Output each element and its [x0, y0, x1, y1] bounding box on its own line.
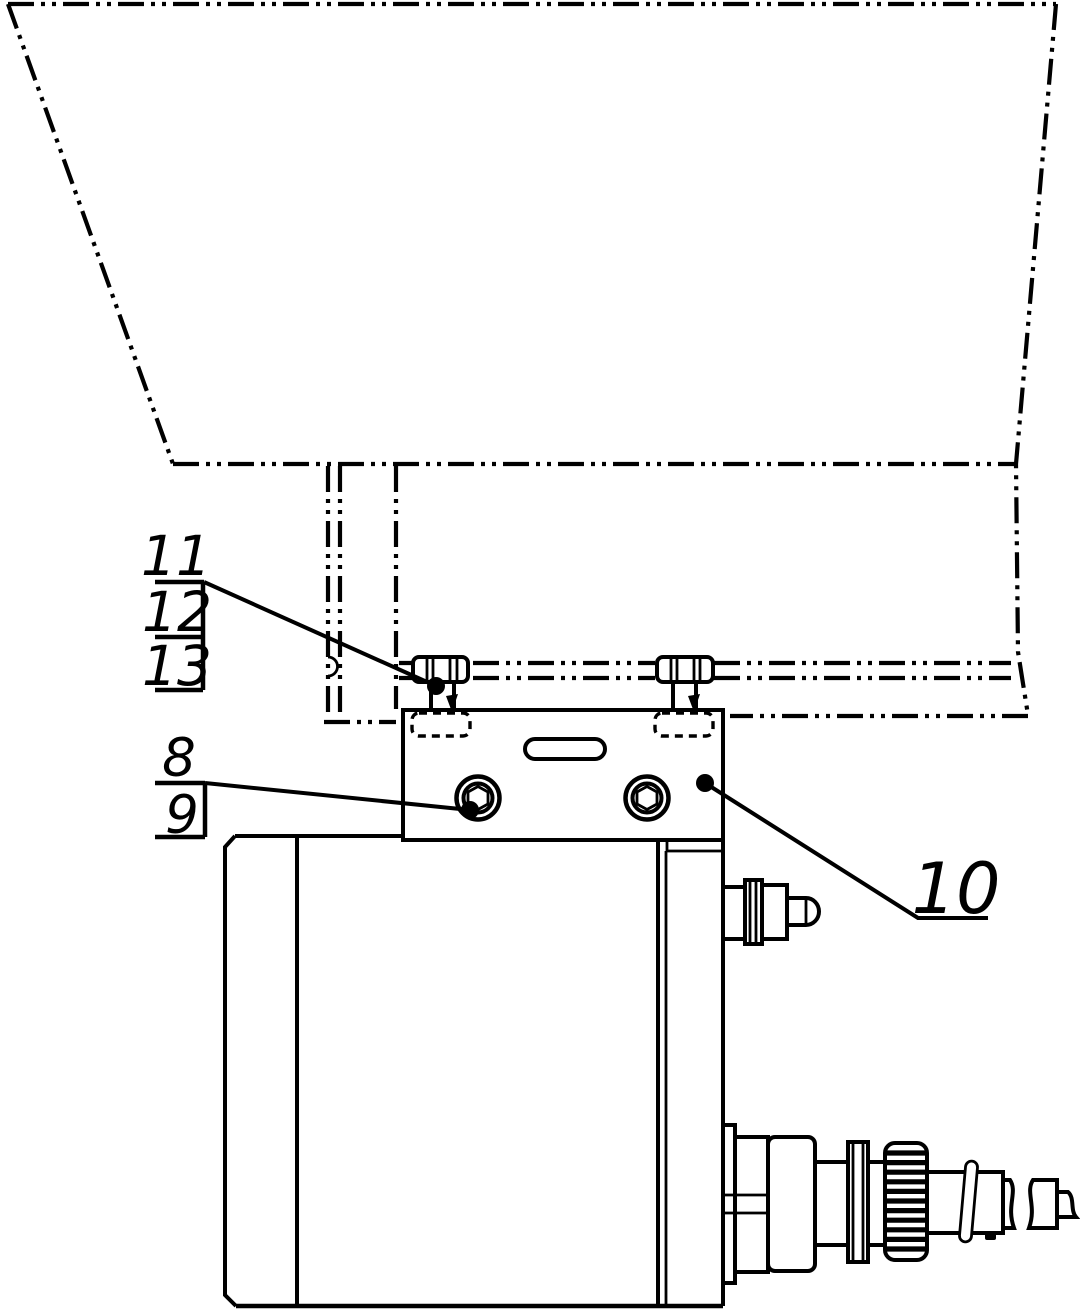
callout-label-8: 8 — [162, 728, 196, 789]
motor-body — [225, 836, 723, 1306]
callout-label-10: 10 — [911, 848, 1000, 930]
callout-label-11: 11 — [141, 524, 211, 588]
connector-body-block — [735, 1137, 768, 1272]
cable-end — [1057, 1192, 1076, 1217]
bracket-slot — [525, 739, 605, 759]
upper-connector — [723, 880, 819, 944]
knurled-coupling-nut — [885, 1143, 927, 1260]
socket-bolt-right — [626, 777, 669, 820]
mounting-bracket — [403, 710, 723, 840]
connector-ring — [848, 1142, 868, 1262]
cable-stub — [1003, 1180, 1014, 1228]
callout-label-13: 13 — [142, 634, 212, 698]
technical-drawing-canvas: 11 12 13 8 9 10 — [0, 0, 1080, 1313]
callout-stack-11-12-13: 11 12 13 — [141, 524, 212, 698]
connector-latch-foot — [985, 1231, 996, 1240]
machine-slot-channel-phantom — [324, 466, 396, 722]
leader-dot-11 — [427, 677, 445, 695]
t-bolt-right-head — [657, 657, 713, 682]
leader-dot-10 — [696, 774, 714, 792]
callout-stack-8-9: 8 9 — [155, 728, 205, 846]
connector-shell — [768, 1137, 815, 1271]
lower-connector — [723, 1125, 1076, 1283]
leader-dot-8 — [461, 801, 479, 819]
cable-break-segment — [1029, 1180, 1057, 1228]
callout-label-9: 9 — [165, 785, 199, 846]
leader-11-12-13 — [204, 582, 436, 686]
callout-10: 10 — [911, 848, 1000, 930]
